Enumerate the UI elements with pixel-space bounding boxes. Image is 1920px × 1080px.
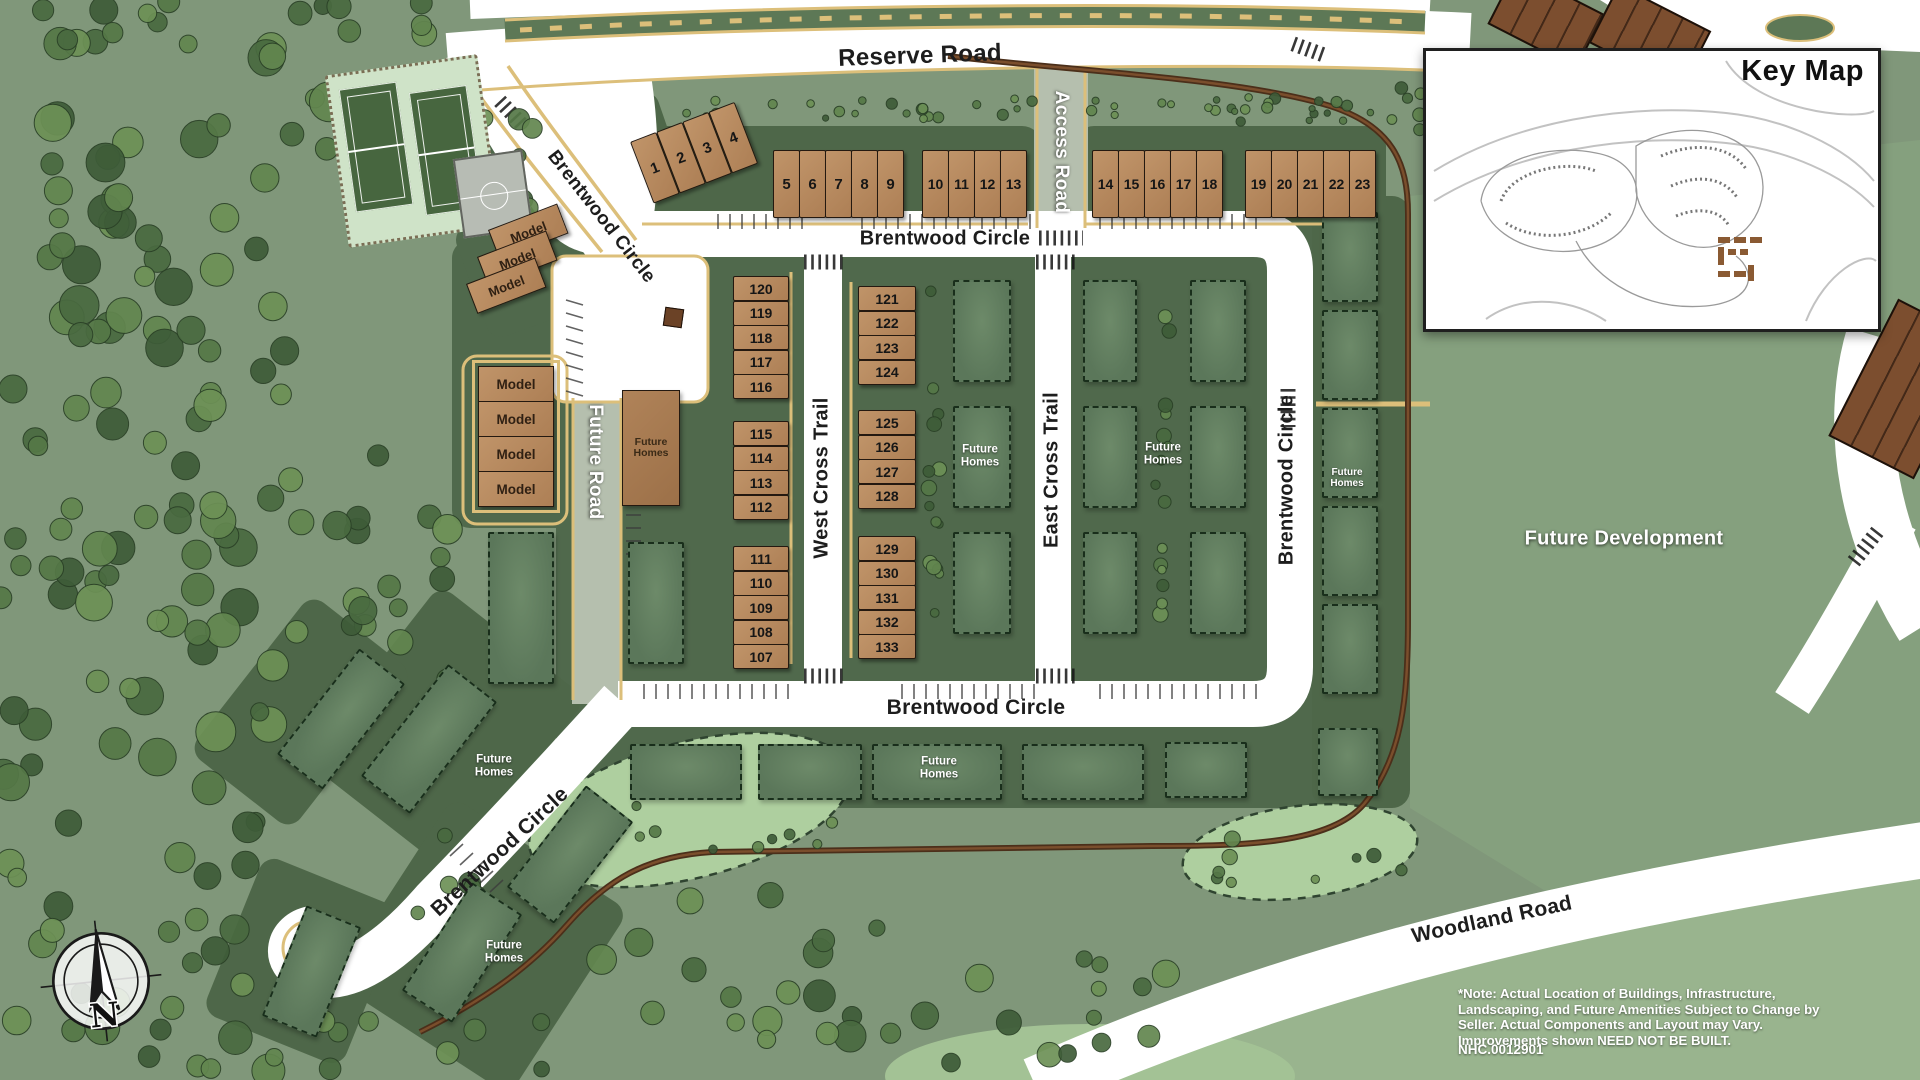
home-unit[interactable]: 113 xyxy=(733,470,789,495)
area-label-future-development: Future Development xyxy=(1525,528,1724,551)
future-home-building[interactable] xyxy=(758,744,862,800)
model-label: Model xyxy=(497,482,536,497)
home-unit[interactable]: 125 xyxy=(858,410,916,435)
future-homes-building[interactable]: Future Homes xyxy=(622,390,680,506)
future-home-building[interactable] xyxy=(953,280,1011,382)
model-home[interactable]: Model xyxy=(479,472,553,506)
future-home-building[interactable] xyxy=(1190,280,1246,382)
home-unit[interactable]: 11 xyxy=(948,150,975,218)
tennis-court xyxy=(339,82,414,213)
home-unit[interactable]: 8 xyxy=(851,150,878,218)
home-unit[interactable]: 119 xyxy=(733,301,789,326)
key-map-inset: Key Map xyxy=(1423,48,1881,332)
home-unit[interactable]: 12 xyxy=(974,150,1001,218)
home-unit[interactable]: 14 xyxy=(1092,150,1119,218)
home-unit[interactable]: 9 xyxy=(877,150,904,218)
road-label-brentwood-top: Brentwood Circle xyxy=(860,228,1030,251)
home-unit[interactable]: 17 xyxy=(1170,150,1197,218)
home-unit[interactable]: 127 xyxy=(858,459,916,484)
home-unit[interactable]: 111 xyxy=(733,546,789,571)
plan-number: NHC.0012901 xyxy=(1458,1042,1544,1057)
road-label-east-cross: East Cross Trail xyxy=(1041,392,1064,548)
home-unit[interactable]: 122 xyxy=(858,311,916,336)
home-unit[interactable]: 116 xyxy=(733,374,789,399)
future-homes-label: Future Homes xyxy=(901,756,977,781)
home-unit[interactable]: 19 xyxy=(1245,150,1272,218)
home-unit[interactable]: 132 xyxy=(858,610,916,635)
future-home-building[interactable] xyxy=(1322,506,1378,596)
home-unit[interactable]: 20 xyxy=(1271,150,1298,218)
future-home-building[interactable] xyxy=(628,542,684,664)
future-home-building[interactable] xyxy=(1165,742,1247,798)
home-unit[interactable]: 128 xyxy=(858,484,916,509)
key-map-sketch xyxy=(1426,51,1878,329)
future-homes-label: Future Homes xyxy=(623,437,679,460)
road-label-future-road: Future Road xyxy=(584,404,606,519)
future-home-building[interactable] xyxy=(630,744,742,800)
home-unit[interactable]: 117 xyxy=(733,350,789,375)
north-compass: N xyxy=(30,910,173,1053)
home-unit[interactable]: 7 xyxy=(825,150,852,218)
future-home-building[interactable] xyxy=(1022,744,1144,800)
model-home[interactable]: Model xyxy=(479,402,553,437)
home-unit[interactable]: 130 xyxy=(858,561,916,586)
home-unit[interactable]: 121 xyxy=(858,286,916,311)
future-home-building[interactable] xyxy=(1083,532,1137,634)
home-unit[interactable]: 114 xyxy=(733,446,789,471)
home-unit[interactable]: 109 xyxy=(733,595,789,620)
home-unit[interactable]: 6 xyxy=(799,150,826,218)
future-homes-label: Future Homes xyxy=(456,754,532,779)
home-unit[interactable]: 13 xyxy=(1000,150,1027,218)
model-label: Model xyxy=(497,447,536,462)
home-unit[interactable]: 5 xyxy=(773,150,800,218)
future-home-building[interactable] xyxy=(1083,280,1137,382)
road-label-reserve: Reserve Road xyxy=(838,39,1003,73)
home-unit[interactable]: 120 xyxy=(733,276,789,301)
compass-north-letter: N xyxy=(88,994,122,1036)
home-unit[interactable]: 21 xyxy=(1297,150,1324,218)
road-label-access: Access Road xyxy=(1050,91,1072,214)
future-home-building[interactable] xyxy=(1322,604,1378,694)
road-label-brentwood-east: Brentwood Circle xyxy=(1276,395,1299,565)
home-unit[interactable]: 108 xyxy=(733,620,789,645)
model-label: Model xyxy=(497,412,536,427)
road-label-west-cross: West Cross Trail xyxy=(811,397,834,558)
key-map-title: Key Map xyxy=(1741,55,1864,88)
future-homes-label: Future Homes xyxy=(1125,442,1201,467)
future-homes-label: Future Homes xyxy=(942,444,1018,469)
road-label-brentwood-bottom: Brentwood Circle xyxy=(887,696,1066,720)
model-home[interactable]: Model xyxy=(479,437,553,472)
home-unit[interactable]: 112 xyxy=(733,495,789,520)
disclaimer-note: *Note: Actual Location of Buildings, Inf… xyxy=(1458,986,1854,1048)
home-unit[interactable]: 15 xyxy=(1118,150,1145,218)
site-plan: Model Model Model Model Model Model Mode… xyxy=(0,0,1920,1080)
model-label: Model xyxy=(486,272,526,299)
home-unit[interactable]: 22 xyxy=(1323,150,1350,218)
home-unit[interactable]: 129 xyxy=(858,536,916,561)
future-home-building[interactable] xyxy=(1318,728,1378,796)
home-unit[interactable]: 115 xyxy=(733,421,789,446)
future-home-building[interactable] xyxy=(1322,310,1378,400)
future-home-building[interactable] xyxy=(953,532,1011,634)
home-unit[interactable]: 118 xyxy=(733,325,789,350)
model-home[interactable]: Model xyxy=(479,367,553,402)
home-unit[interactable]: 123 xyxy=(858,335,916,360)
model-homes-building[interactable]: Model Model Model Model xyxy=(478,366,554,507)
future-homes-label: Future Homes xyxy=(1318,467,1376,489)
model-label: Model xyxy=(497,377,536,392)
home-unit[interactable]: 126 xyxy=(858,435,916,460)
future-homes-label: Future Homes xyxy=(466,940,542,965)
future-home-building[interactable] xyxy=(488,532,554,684)
home-unit[interactable]: 110 xyxy=(733,571,789,596)
utility-building xyxy=(663,307,684,328)
future-home-building[interactable] xyxy=(1322,212,1378,302)
home-unit[interactable]: 131 xyxy=(858,585,916,610)
future-home-building[interactable] xyxy=(1190,532,1246,634)
home-unit[interactable]: 16 xyxy=(1144,150,1171,218)
home-unit[interactable]: 18 xyxy=(1196,150,1223,218)
home-unit[interactable]: 107 xyxy=(733,644,789,669)
home-unit[interactable]: 10 xyxy=(922,150,949,218)
home-unit[interactable]: 133 xyxy=(858,634,916,659)
home-unit[interactable]: 23 xyxy=(1349,150,1376,218)
home-unit[interactable]: 124 xyxy=(858,360,916,385)
